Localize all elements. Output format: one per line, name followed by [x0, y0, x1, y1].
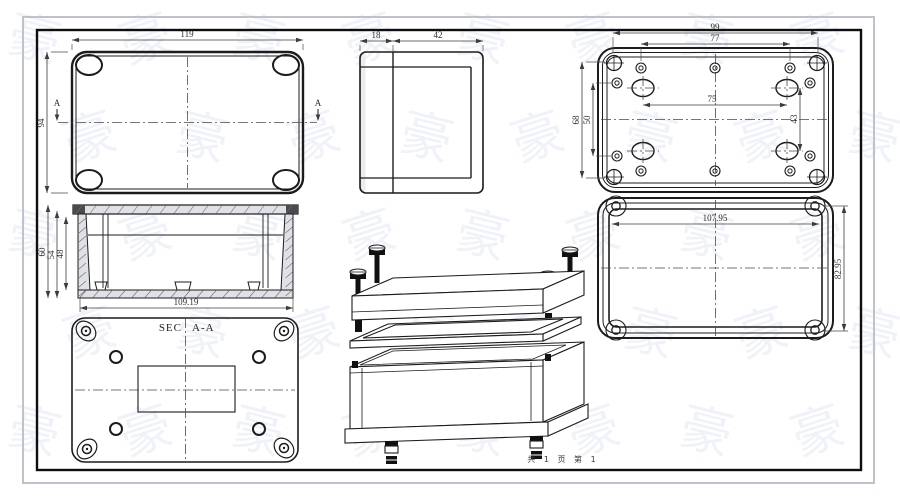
screw-boss [636, 63, 646, 73]
dim-43: 43 [789, 88, 802, 151]
screw [369, 245, 385, 283]
corner-boss [76, 170, 102, 190]
label-recess [138, 366, 235, 412]
mount-hole [627, 139, 659, 163]
exploded-view [345, 245, 588, 464]
dim-base-depth: 42 [393, 30, 483, 51]
section-label: A [315, 98, 322, 108]
screw-boss [612, 151, 622, 161]
dim-lid-width: 107.95 [612, 213, 819, 226]
screw-boss [612, 78, 622, 88]
screw-boss [710, 166, 720, 176]
mount-hole [771, 139, 803, 163]
screw-boss [636, 166, 646, 176]
page-footer: 共 1 页 第 1 [527, 454, 598, 464]
dim-top-width: 119 [72, 29, 303, 50]
dim-lid-thickness-text: 18 [372, 30, 382, 40]
section-arrow-left: A [54, 98, 61, 121]
foot-hole [253, 423, 265, 435]
dim-75-text: 75 [708, 94, 718, 104]
screw-boss [710, 63, 720, 73]
dim-lid-thickness: 18 [360, 30, 393, 51]
corner-boss [76, 55, 102, 75]
foot-hole [110, 423, 122, 435]
dim-base-depth-text: 42 [434, 30, 443, 40]
section-label-right: A-A [192, 322, 215, 334]
screw-boss [805, 151, 815, 161]
dim-77-text: 77 [711, 33, 721, 43]
section-label-left: SEC [159, 322, 182, 334]
dim-68-text: 68 [571, 115, 581, 125]
mount-hole [771, 76, 803, 100]
bottom-view [72, 317, 298, 463]
section-view: SEC A-A [73, 205, 298, 334]
dim-50-text: 50 [582, 115, 592, 125]
top-view: A A [54, 52, 322, 193]
dim-lid-height: 82.95 [823, 206, 848, 331]
engineering-drawing: A A [0, 0, 900, 500]
dim-lid-width-text: 107.95 [703, 213, 728, 223]
foot-hole [253, 351, 265, 363]
dim-75: 75 [643, 94, 787, 107]
section-arrow-right: A [315, 98, 322, 121]
dim-inner-width: 109.19 [80, 297, 293, 312]
corner-boss [273, 170, 299, 190]
mount-hole [627, 76, 659, 100]
dim-48-text: 48 [55, 249, 65, 259]
dim-inner-width-text: 109.19 [174, 297, 199, 307]
dim-lid-height-text: 82.95 [833, 258, 843, 279]
dim-43-text: 43 [789, 114, 799, 124]
dim-top-width-text: 119 [180, 29, 194, 39]
dim-99-text: 99 [711, 22, 721, 32]
section-label: A [54, 98, 61, 108]
corner-boss [273, 55, 299, 75]
foot-hole [110, 351, 122, 363]
screw-boss [785, 166, 795, 176]
side-view [360, 52, 483, 193]
exploded-base [345, 342, 588, 443]
dim-top-height-text: 94 [36, 118, 46, 128]
screw-boss [785, 63, 795, 73]
screw-boss [805, 78, 815, 88]
